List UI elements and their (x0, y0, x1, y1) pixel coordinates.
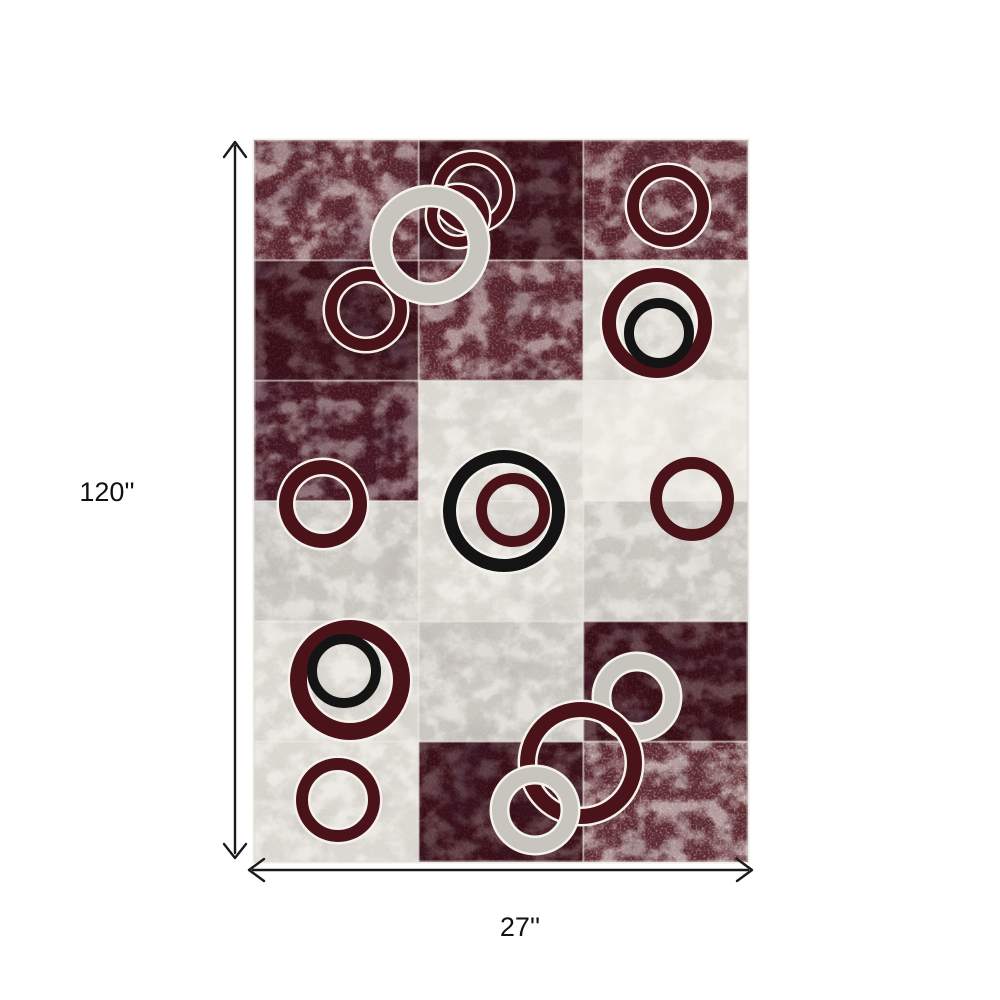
rug-cell-texture (254, 501, 419, 621)
rug-cell-texture (419, 260, 584, 380)
rug (254, 140, 748, 862)
width-dimension-label: 27'' (500, 912, 540, 942)
rug-cell-texture (254, 381, 419, 501)
product-dimension-image: 120'' 27'' (0, 0, 1000, 1000)
height-dimension-arrow (224, 142, 246, 858)
height-dimension-label: 120'' (79, 477, 134, 507)
